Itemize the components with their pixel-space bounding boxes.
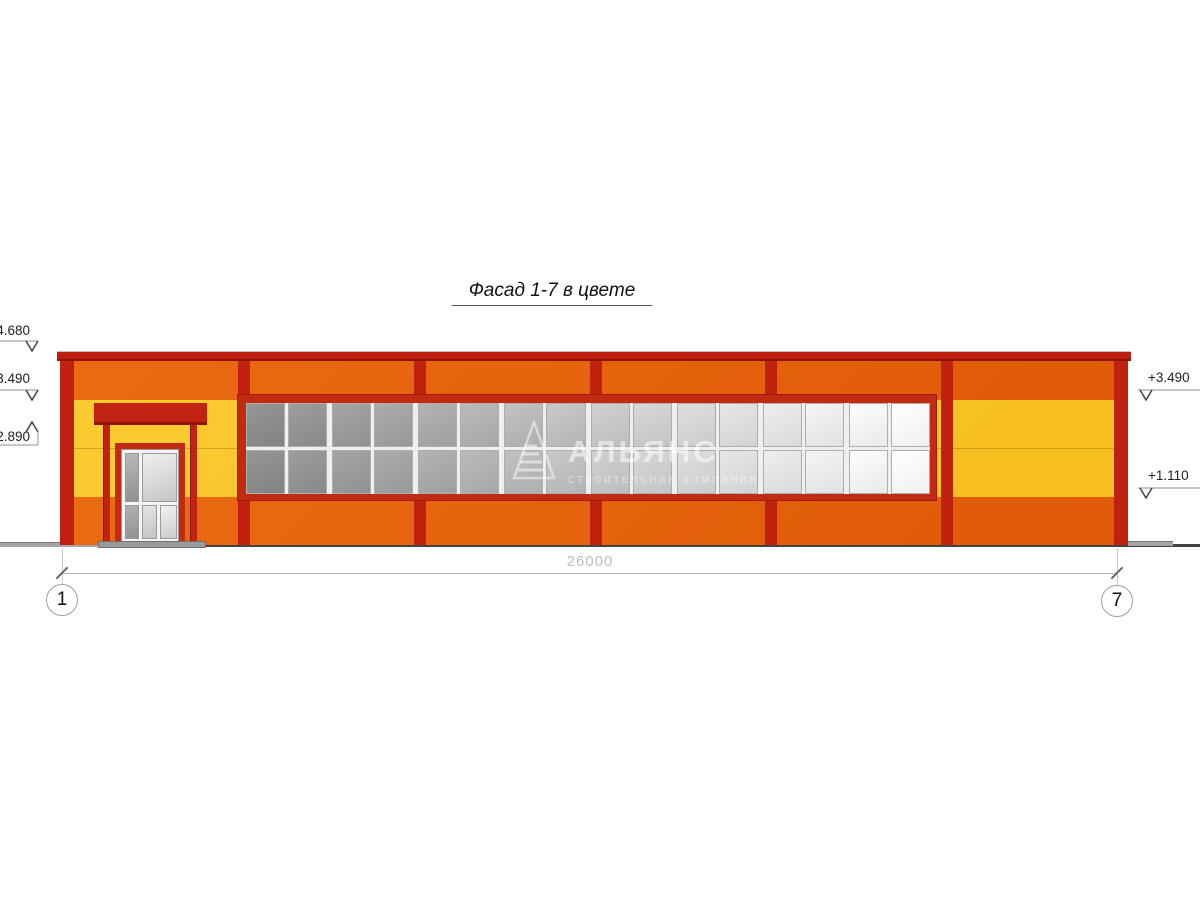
- window-pane: [849, 403, 888, 447]
- window-pane: [418, 403, 457, 447]
- canopy-post-right: [190, 425, 197, 545]
- elevation-mark-icon: [0, 389, 46, 402]
- door-glass-pane: [125, 505, 139, 539]
- elevation-label-right-top: +3.490: [1148, 370, 1190, 385]
- sidewalk-right: [1128, 541, 1173, 546]
- building-facade: [60, 351, 1128, 545]
- window-pane: [805, 403, 844, 447]
- roof-parapet: [57, 351, 1131, 361]
- window-pane: [418, 450, 457, 494]
- window-pane: [374, 403, 413, 447]
- elevation-mark-icon: [0, 340, 46, 353]
- pilaster-axis-1: [60, 361, 74, 545]
- window-pane-group: [849, 403, 930, 494]
- elevation-label-right-bottom: +1.110: [1148, 468, 1189, 483]
- window-pane: [504, 450, 543, 494]
- pilaster-axis-7: [1114, 361, 1128, 545]
- axis-bubble-1: 1: [46, 584, 78, 616]
- window-pane: [332, 450, 371, 494]
- window-pane: [288, 403, 327, 447]
- window-pane: [719, 403, 758, 447]
- window-pane: [374, 450, 413, 494]
- window-pane: [763, 450, 802, 494]
- window-pane: [849, 450, 888, 494]
- door-glass-pane: [142, 505, 157, 539]
- drawing-title: Фасад 1-7 в цвете: [452, 280, 652, 306]
- window-pane: [504, 403, 543, 447]
- window-pane-group: [246, 403, 327, 494]
- window-pane: [546, 403, 585, 447]
- window-pane: [677, 450, 716, 494]
- window-pane-group: [677, 403, 758, 494]
- canopy-post-left: [103, 425, 110, 545]
- window-pane: [677, 403, 716, 447]
- pilaster-axis-6: [941, 361, 953, 545]
- window-pane: [288, 450, 327, 494]
- window-pane-group: [763, 403, 844, 494]
- ribbon-window: [237, 394, 937, 501]
- window-pane: [332, 403, 371, 447]
- elevation-mark-icon: [1138, 389, 1200, 402]
- window-pane: [460, 403, 499, 447]
- window-pane-group: [418, 403, 499, 494]
- door-glass-pane: [142, 453, 177, 502]
- door-glass-pane: [160, 505, 177, 539]
- window-pane: [719, 450, 758, 494]
- window-pane: [633, 450, 672, 494]
- dimension-line: [62, 573, 1117, 574]
- entrance-door: [121, 449, 179, 542]
- window-pane: [246, 403, 285, 447]
- dimension-value: 26000: [540, 553, 640, 570]
- elevation-label-left-mid: 3.490: [0, 371, 30, 386]
- window-pane: [591, 403, 630, 447]
- window-pane: [591, 450, 630, 494]
- window-pane-group: [332, 403, 413, 494]
- entrance-canopy: [94, 403, 207, 425]
- window-pane: [891, 450, 930, 494]
- door-glass-pane: [125, 453, 139, 502]
- window-pane: [891, 403, 930, 447]
- window-pane: [460, 450, 499, 494]
- window-pane: [546, 450, 585, 494]
- window-pane-group: [591, 403, 672, 494]
- elevation-mark-icon: [1138, 487, 1200, 500]
- window-pane: [246, 450, 285, 494]
- facade-drawing-sheet: Фасад 1-7 в цвете: [0, 0, 1200, 900]
- window-pane-group: [504, 403, 585, 494]
- window-pane: [633, 403, 672, 447]
- elevation-mark-icon: [0, 421, 46, 448]
- window-pane: [763, 403, 802, 447]
- window-glazing: [246, 403, 930, 494]
- axis-bubble-7: 7: [1101, 585, 1133, 617]
- elevation-label-left-top: 4.680: [0, 323, 30, 338]
- window-pane: [805, 450, 844, 494]
- entrance-step: [98, 541, 206, 548]
- entrance-door-frame: [115, 443, 185, 545]
